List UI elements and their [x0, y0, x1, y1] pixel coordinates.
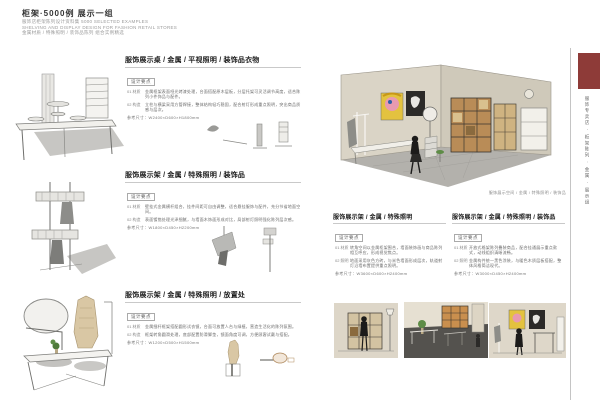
dimension-line: 参考尺寸：W3600×D600×H2400mm: [335, 271, 446, 277]
spec-text: 金属细杆框架搭配圆形试衣镜，台面可放置人台与绿植，营造生活化的陈列氛围。: [145, 324, 301, 329]
header-subtitle-3: 金属材质 / 特殊照明 / 装饰品陈列 组合实例精选: [22, 30, 282, 36]
spec-text: 地面采用灰色方砖，与米色墙面形成层次，轨道射灯沿墙布置提供重点照明。: [350, 258, 446, 268]
chapter-color-tab: [578, 53, 600, 89]
display-table-sketch: [12, 72, 127, 167]
section-heading: 服饰展示架 / 金属 / 特殊照明 / 装饰品: [125, 170, 301, 183]
design-tag: 设计要点: [127, 313, 155, 321]
hand-mirror-sketch: [273, 353, 287, 363]
spec-text: 金属框架表面哑光烤漆处理，台面搭配原木层板，分层托架可灵活调节高度，适合陈列小件…: [145, 89, 301, 99]
elevation-shelves: [334, 303, 398, 358]
design-tag: 设计要点: [335, 234, 363, 242]
column-sketch: [257, 124, 262, 146]
spec-label: 02 构造: [127, 102, 145, 112]
spec-label: 01 材质: [127, 204, 145, 214]
chapter-vertical-label: 服饰专卖店 · 柜架陈列 · 金属 · 展示组: [584, 96, 590, 256]
round-mirror: [423, 107, 437, 121]
spec-row: 02 构造 立柱与横梁采用方管焊接，整体结构轻巧稳固，配合射灯形成重点照明，突出…: [127, 102, 301, 112]
figure-silhouette: [516, 328, 522, 334]
rack-shadow: [67, 244, 116, 274]
spec-text: 立柱与横梁采用方管焊接，整体结构轻巧稳固，配合射灯形成重点照明，突出商品质感与层…: [145, 102, 301, 112]
sign-sketch: [264, 228, 276, 235]
white-shelf: [521, 108, 547, 150]
section-heading: 服饰展示架 / 金属 / 特殊照明: [333, 212, 446, 224]
spec-label: 02 构造: [127, 217, 145, 222]
tiered-stand: [47, 102, 69, 107]
section-heading: 服饰展示架 / 金属 / 特殊照明 / 装饰品: [452, 212, 565, 224]
spec-row: 01 材质 转角空间以金属柜架围合，墙面装饰画与商品陈列相互呼应，形成视觉焦点。: [335, 245, 446, 255]
design-tag: 设计要点: [127, 193, 155, 201]
oval-mirror: [24, 299, 68, 333]
spec-label: 01 材质: [454, 245, 469, 255]
spec-text: 转角空间以金属柜架围合，墙面装饰画与商品陈列相互呼应，形成视觉焦点。: [350, 245, 446, 255]
spec-row: 02 照明 金属构件统一黑色涂装，与暖色木质层板搭配，整体风格简洁现代。: [454, 258, 565, 268]
plant: [418, 320, 426, 328]
lower-slat-bar: [32, 230, 78, 239]
upper-slat-bar: [36, 192, 84, 201]
elevation-posters: [489, 303, 566, 358]
dimension-line: 参考尺寸：W3000×D450×H2400mm: [454, 271, 565, 277]
interior-view: [404, 302, 488, 358]
mini-torso-sketch: [228, 340, 239, 364]
spec-label: 02 构造: [127, 332, 145, 337]
design-tag: 设计要点: [127, 78, 155, 86]
figure-sketches: [202, 222, 302, 280]
mannequin-torso: [74, 296, 98, 348]
spec-label: 01 材质: [335, 245, 350, 255]
right-block-1: 服饰展示架 / 金属 / 特殊照明 设计要点 01 材质 转角空间以金属柜架围合…: [333, 212, 446, 277]
figure-silhouette: [361, 316, 367, 322]
spec-label: 01 材质: [127, 89, 145, 99]
spec-label: 02 照明: [454, 258, 469, 268]
spec-text: 金属构件统一黑色涂装，与暖色木质层板搭配，整体风格简洁现代。: [469, 258, 565, 268]
wood-shelf: [442, 306, 468, 328]
page-trim-line: [570, 48, 571, 400]
spec-row: 01 材质 开放式格架陈列叠装商品，配合挂通展示重点款式，动线组织清晰流畅。: [454, 245, 565, 255]
spec-text: 壁挂式金属横杆组合，挂件间距可自由调整，适合悬挂服饰与配件，充分节省地面空间。: [145, 204, 301, 214]
spec-label: 01 材质: [127, 324, 145, 329]
spec-row: 01 材质 金属细杆框架搭配圆形试衣镜，台面可放置人台与绿植，营造生活化的陈列氛…: [127, 324, 301, 329]
spec-row: 02 照明 地面采用灰色方砖，与米色墙面形成层次，轨道射灯沿墙布置提供重点照明。: [335, 258, 446, 268]
spec-text: 开放式格架陈列叠装商品，配合挂通展示重点款式，动线组织清晰流畅。: [469, 245, 565, 255]
ornament-sketch: [207, 125, 219, 131]
hanging-garment-upper: [60, 202, 74, 224]
page-header: 柜架·5000例 展示一组 服饰店柜架陈列设计资料集 5000 SELECTED…: [22, 8, 282, 36]
render-caption: 服饰展示空间 / 金属 / 特殊照明 / 装饰品: [420, 190, 566, 196]
hanging-garment-lower: [50, 240, 64, 264]
accessory-sketches: [195, 112, 300, 162]
white-panel: [557, 317, 564, 351]
step-display: [425, 136, 437, 158]
section-heading: 服饰展示桌 / 金属 / 平视照明 / 装饰品衣物: [125, 55, 301, 68]
right-block-2: 服饰展示架 / 金属 / 特殊照明 / 装饰品 设计要点 01 材质 开放式格架…: [452, 212, 565, 277]
table-top: [16, 120, 116, 130]
corner-room-render: [333, 60, 566, 188]
spec-row: 01 材质 壁挂式金属横杆组合，挂件间距可自由调整，适合悬挂服饰与配件，充分节省…: [127, 204, 301, 214]
vanity-sketch: [12, 292, 124, 397]
spec-label: 02 照明: [335, 258, 350, 268]
spec-row: 01 材质 金属框架表面哑光烤漆处理，台面搭配原木层板，分层托架可灵活调节高度，…: [127, 89, 301, 99]
wall-rack-sketch: [12, 178, 122, 286]
page-title: 柜架·5000例 展示一组: [22, 8, 282, 19]
plant: [436, 150, 444, 154]
design-tag: 设计要点: [454, 234, 482, 242]
prop-sketches: [202, 336, 302, 384]
figure-silhouette: [476, 334, 480, 338]
wall-lamp: [525, 90, 534, 99]
section-heading: 服饰展示架 / 金属 / 特殊照明 / 放置处: [125, 290, 301, 303]
